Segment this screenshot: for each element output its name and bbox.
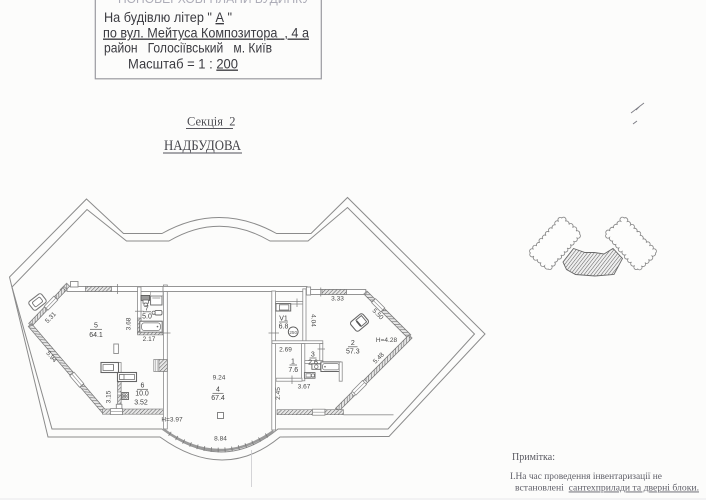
svg-text:4.04: 4.04 xyxy=(310,314,317,327)
svg-text:6.8: 6.8 xyxy=(279,324,289,331)
svg-text:2.45: 2.45 xyxy=(275,387,282,400)
svg-text:7: 7 xyxy=(145,305,149,312)
svg-text:2.69: 2.69 xyxy=(279,347,292,354)
svg-text:НАДБУДОВА: НАДБУДОВА xyxy=(164,138,241,154)
svg-text:5.31: 5.31 xyxy=(44,311,58,325)
svg-text:район Голосіївський м. Киї: район Голосіївський м. Київ xyxy=(104,41,272,56)
svg-text:V1: V1 xyxy=(279,316,288,323)
svg-text:встановлені сантехприлади та: встановлені сантехприлади та дверні блок… xyxy=(515,483,699,493)
svg-text:10.0: 10.0 xyxy=(135,391,149,398)
svg-text:3.33: 3.33 xyxy=(331,296,344,303)
svg-text:3.15: 3.15 xyxy=(106,390,113,403)
svg-text:6: 6 xyxy=(141,383,145,390)
svg-text:Секція 2: Секція 2 xyxy=(187,115,236,129)
svg-text:І.На час проведення інвентариз: І.На час проведення інвентаризації не xyxy=(510,471,662,481)
svg-text:3: 3 xyxy=(311,352,315,359)
svg-text:по вул. Мейтуса Композитора ,: по вул. Мейтуса Композитора , 4 а xyxy=(103,26,309,41)
svg-text:Масштаб = 1 : 200: Масштаб = 1 : 200 xyxy=(128,57,238,72)
svg-text:5.0: 5.0 xyxy=(142,313,152,320)
svg-text:5: 5 xyxy=(94,323,98,330)
svg-text:3.52: 3.52 xyxy=(134,400,148,407)
svg-text:Н=3.97: Н=3.97 xyxy=(161,417,183,424)
svg-text:250: 250 xyxy=(289,330,297,335)
svg-text:На будівлю літер " А ": На будівлю літер " А " xyxy=(104,10,232,25)
svg-text:1: 1 xyxy=(291,359,295,366)
svg-text:Н=4.28: Н=4.28 xyxy=(376,337,398,344)
svg-text:64.1: 64.1 xyxy=(89,332,103,339)
svg-text:9.24: 9.24 xyxy=(213,375,226,382)
svg-text:Примітка:: Примітка: xyxy=(512,452,555,463)
svg-text:4: 4 xyxy=(216,387,220,394)
svg-text:57.3: 57.3 xyxy=(346,349,360,356)
svg-text:8.84: 8.84 xyxy=(214,436,227,443)
svg-text:3.68: 3.68 xyxy=(126,317,133,330)
svg-text:2.17: 2.17 xyxy=(143,336,156,343)
svg-text:67.4: 67.4 xyxy=(211,395,225,402)
svg-text:ПОПОВЕРХОВІ ПЛАНИ БУДИНКУ: ПОПОВЕРХОВІ ПЛАНИ БУДИНКУ xyxy=(118,0,310,6)
svg-text:3.67: 3.67 xyxy=(298,384,311,391)
svg-text:7.6: 7.6 xyxy=(288,367,298,374)
svg-text:2: 2 xyxy=(351,340,355,347)
